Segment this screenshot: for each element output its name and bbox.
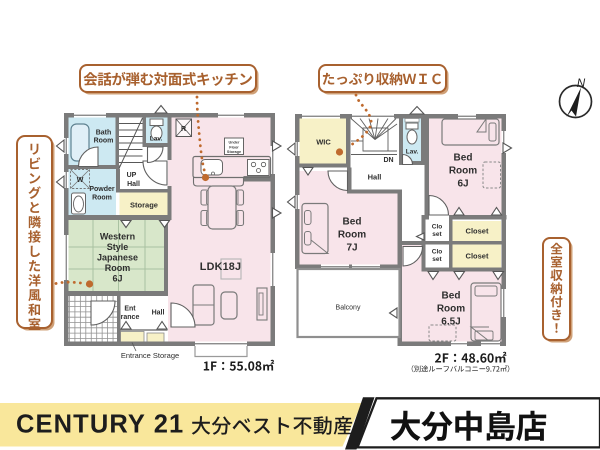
svg-text:LDK18J: LDK18J	[200, 261, 241, 273]
svg-text:Closet: Closet	[466, 252, 489, 261]
svg-text:Bath: Bath	[96, 130, 112, 137]
svg-text:Lav.: Lav.	[406, 149, 419, 156]
svg-text:Bed: Bed	[442, 291, 461, 302]
svg-text:set: set	[432, 231, 442, 238]
svg-text:Room: Room	[338, 230, 366, 241]
svg-text:Room: Room	[437, 304, 465, 315]
svg-text:rance: rance	[121, 314, 140, 321]
svg-text:Closet: Closet	[466, 227, 489, 236]
svg-text:N: N	[577, 78, 586, 90]
svg-text:Style: Style	[107, 242, 129, 252]
svg-text:R: R	[181, 126, 186, 133]
svg-text:Powder: Powder	[89, 186, 115, 193]
svg-text:CENTURY 21: CENTURY 21	[16, 411, 184, 439]
svg-text:WIC: WIC	[316, 138, 331, 147]
svg-text:Under: Under	[229, 141, 240, 145]
svg-text:W: W	[77, 177, 84, 184]
svg-text:6J: 6J	[457, 179, 468, 190]
svg-text:Entrance Storage: Entrance Storage	[121, 351, 179, 360]
svg-text:6J: 6J	[112, 274, 122, 284]
svg-text:Room: Room	[92, 195, 112, 202]
svg-text:Ent: Ent	[124, 306, 136, 313]
svg-text:Balcony: Balcony	[336, 305, 361, 312]
svg-text:7J: 7J	[346, 243, 357, 254]
svg-text:Hall: Hall	[127, 181, 140, 188]
svg-text:Clo: Clo	[432, 224, 443, 231]
svg-text:DN: DN	[383, 157, 393, 164]
svg-text:6.5J: 6.5J	[441, 317, 460, 328]
svg-text:Western: Western	[100, 232, 135, 242]
svg-text:Japanese: Japanese	[97, 253, 138, 263]
svg-text:Hall: Hall	[152, 310, 165, 317]
svg-text:Hall: Hall	[368, 173, 382, 182]
svg-text:UP: UP	[127, 172, 137, 179]
svg-text:Bed: Bed	[343, 217, 362, 228]
svg-text:Storage: Storage	[130, 201, 158, 210]
svg-text:set: set	[432, 256, 442, 263]
svg-text:Lav.: Lav.	[150, 136, 163, 143]
svg-text:Bed: Bed	[454, 153, 473, 164]
svg-text:Storage: Storage	[227, 150, 241, 154]
svg-text:Floor: Floor	[229, 145, 239, 149]
svg-text:Room: Room	[449, 166, 477, 177]
svg-text:Clo: Clo	[432, 249, 443, 256]
svg-text:Room: Room	[105, 263, 131, 273]
svg-text:Room: Room	[94, 138, 114, 145]
